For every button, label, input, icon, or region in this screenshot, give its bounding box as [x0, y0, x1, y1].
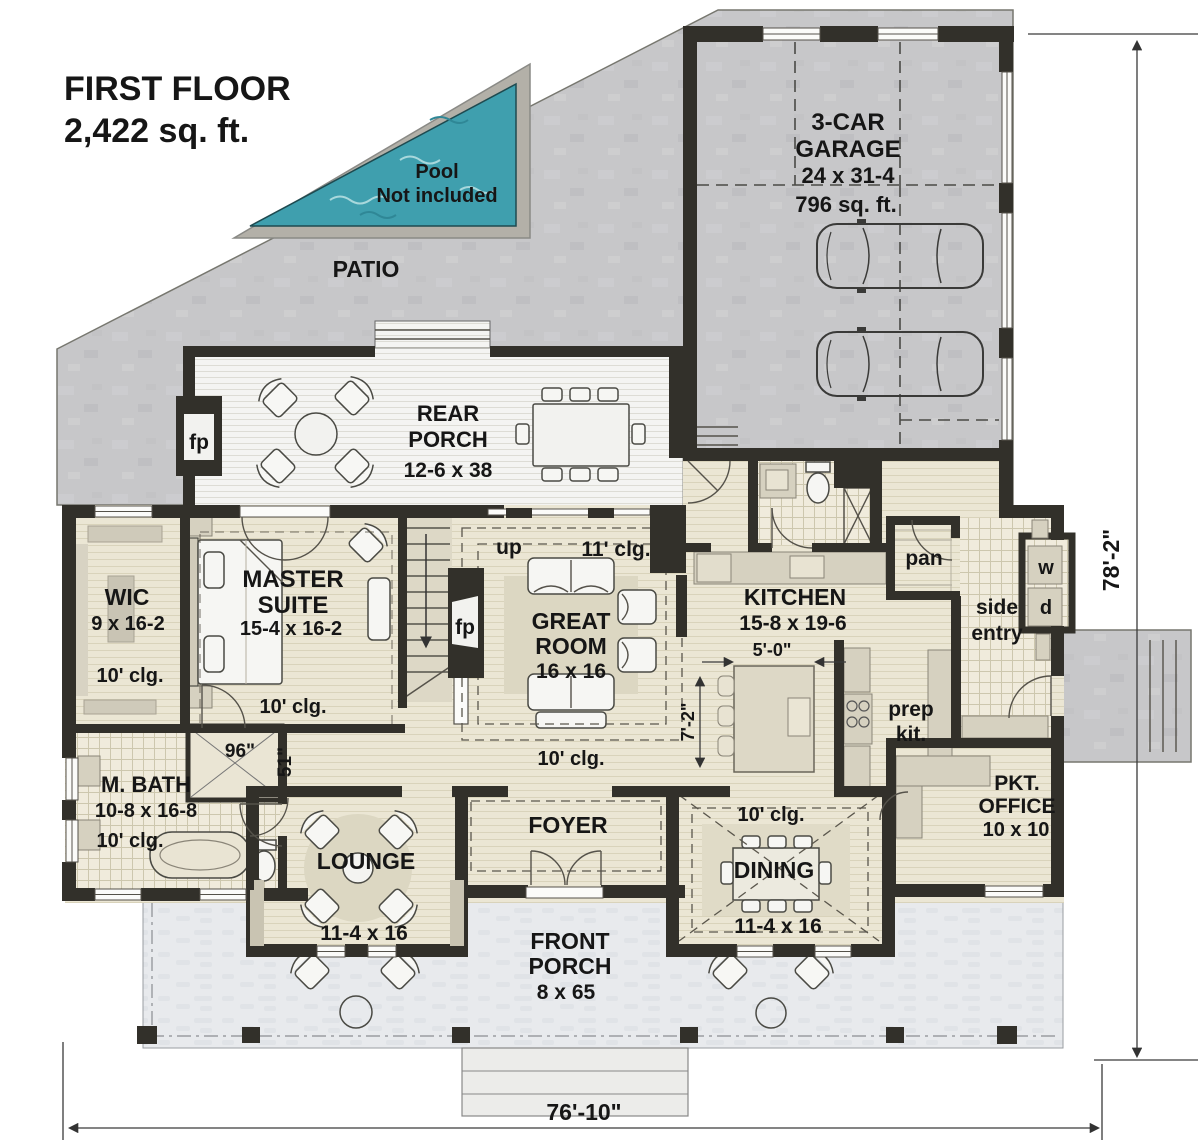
rear-porch-fp: fp [189, 431, 209, 454]
pool-label-2: Not included [376, 185, 497, 207]
great-room-fp: fp [455, 616, 475, 639]
lounge-name: LOUNGE [317, 848, 415, 874]
prep-kit-1: prep [888, 698, 934, 721]
tub [150, 832, 250, 878]
great-room-ceiling: 11' clg. [581, 538, 650, 561]
dining-ceiling: 10' clg. [737, 804, 804, 826]
office-dims: 10 x 10 [983, 819, 1050, 841]
front-porch-name-1: FRONT [530, 928, 609, 954]
side-entry-2: entry [971, 622, 1023, 645]
overall-width-dim: 76'-10" [546, 1099, 621, 1125]
master-name-1: MASTER [242, 566, 343, 593]
garage-name-2: GARAGE [795, 136, 900, 163]
great-room-dims: 16 x 16 [536, 660, 606, 683]
bench [962, 716, 1048, 738]
office-name-1: PKT. [994, 772, 1040, 795]
master-dims: 15-4 x 16-2 [240, 618, 342, 640]
master-ceiling: 10' clg. [259, 696, 326, 718]
great-room-name-1: GREAT [532, 608, 611, 634]
page-subtitle: 2,422 sq. ft. [64, 112, 249, 150]
mbath-name: M. BATH [101, 772, 191, 797]
shower-depth: 51" [275, 747, 296, 777]
lounge-dims: 11-4 x 16 [320, 922, 408, 945]
garage-dims: 24 x 31-4 [802, 163, 896, 188]
master-name-2: SUITE [258, 592, 329, 619]
vanity-sink-1 [78, 756, 100, 786]
hall-ceiling: 10' clg. [537, 748, 604, 770]
floor-plan-page: FIRST FLOOR 2,422 sq. ft. Pool Not inclu… [0, 0, 1200, 1145]
rear-porch-name-2: PORCH [408, 427, 487, 452]
foyer-name: FOYER [528, 812, 608, 838]
pantry-label: pan [905, 547, 942, 570]
patio-label: PATIO [333, 256, 400, 282]
mbath-dims: 10-8 x 16-8 [95, 800, 197, 822]
side-entry-1: side [976, 596, 1018, 619]
front-porch-dims: 8 x 65 [537, 981, 596, 1004]
wic-name: WIC [105, 584, 150, 610]
dryer-label: d [1040, 597, 1052, 619]
understairs-door [454, 676, 468, 724]
fridge [697, 554, 731, 582]
wic-ceiling: 10' clg. [96, 665, 163, 687]
office-name-2: OFFICE [979, 795, 1056, 818]
garage-area: 796 sq. ft. [795, 192, 896, 217]
pool-label-1: Pool [415, 161, 458, 183]
front-porch-name-2: PORCH [528, 953, 611, 979]
great-room-name-2: ROOM [535, 633, 607, 659]
shower-width: 96" [225, 741, 255, 762]
great-room-chimney [650, 505, 686, 573]
mbath-ceiling: 10' clg. [96, 830, 163, 852]
washer-label: w [1037, 557, 1054, 579]
wic-dims: 9 x 16-2 [91, 613, 164, 635]
page-title: FIRST FLOOR [64, 70, 291, 108]
garage-name-1: 3-CAR [811, 109, 884, 136]
floor-plan-drawing: FIRST FLOOR 2,422 sq. ft. Pool Not inclu… [0, 0, 1200, 1145]
stairs-up: up [496, 536, 522, 559]
powder-toilet [807, 473, 829, 503]
dining-name: DINING [734, 857, 815, 883]
kitchen-dims: 15-8 x 19-6 [739, 612, 846, 635]
kitchen-sink [790, 556, 824, 578]
prep-kit-2: kit. [896, 723, 926, 746]
rear-porch-name-1: REAR [417, 401, 479, 426]
side-stoop [1063, 630, 1191, 762]
dining-dims: 11-4 x 16 [734, 915, 822, 938]
overall-depth-dim: 78'-2" [1098, 529, 1124, 591]
island-width-dim: 5'-0" [753, 640, 792, 660]
master-bench [368, 578, 390, 640]
island-clearance-dim: 7'-2" [678, 703, 698, 742]
rear-porch-dims: 12-6 x 38 [404, 459, 493, 482]
kitchen-name: KITCHEN [744, 584, 846, 610]
